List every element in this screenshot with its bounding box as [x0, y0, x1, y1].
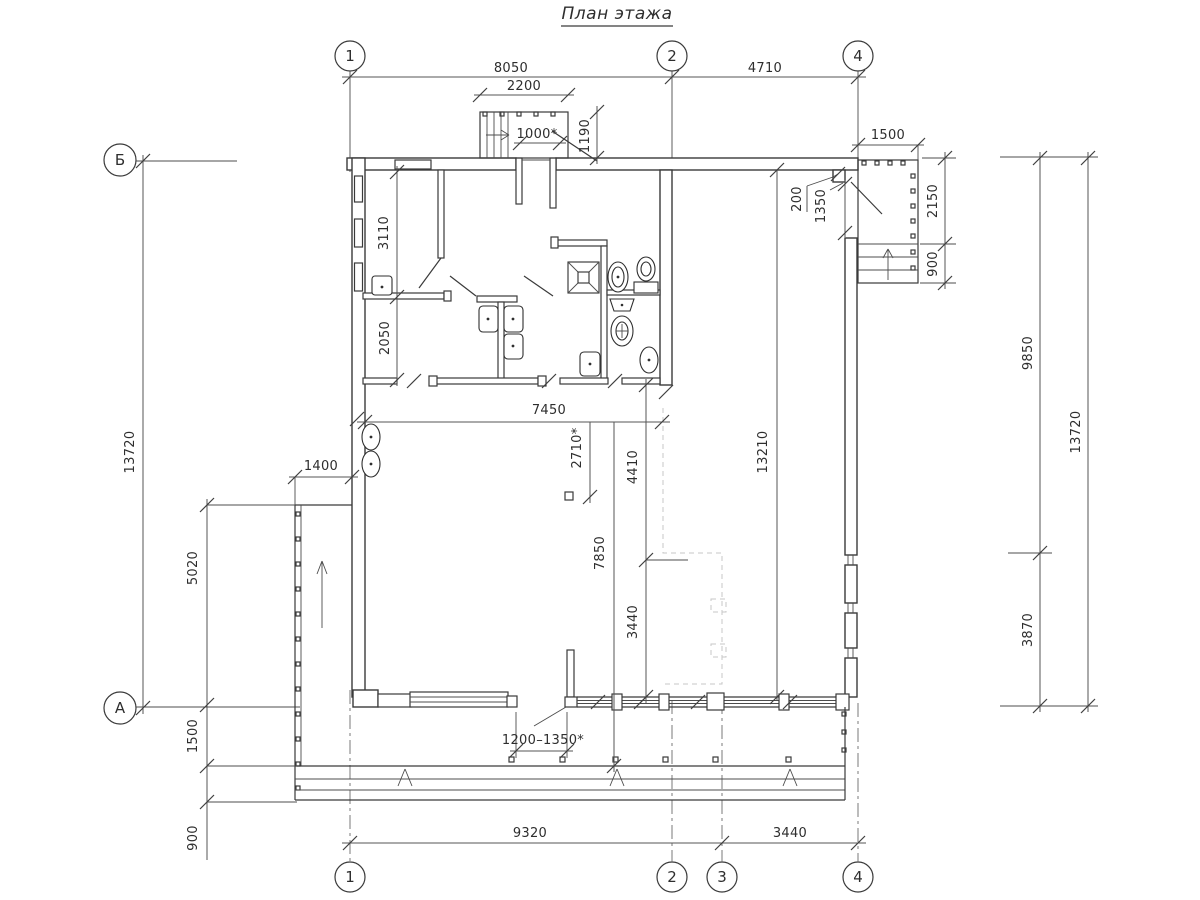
pier — [565, 492, 573, 500]
floor-plan-svg: План этажа 1 2 4 1 2 3 4 Б А — [0, 0, 1200, 900]
sink-icon — [504, 334, 523, 359]
dim-label-3440-mid: 3440 — [626, 605, 641, 639]
dim-label-9850: 9850 — [1021, 336, 1036, 370]
axis-label: 1 — [345, 47, 355, 65]
urinal-icon — [608, 262, 628, 292]
dim-label-3440-bottom: 3440 — [773, 826, 807, 841]
toilet-icon — [634, 257, 658, 293]
dim-label-7850: 7850 — [593, 536, 608, 570]
dim-label-3110: 3110 — [377, 216, 392, 250]
column — [659, 694, 669, 710]
dim-label-3870: 3870 — [1021, 613, 1036, 647]
sink-icon — [610, 299, 634, 311]
ghost-outline — [663, 408, 726, 684]
axis-label: 1 — [345, 868, 355, 886]
door-leaf — [851, 182, 882, 214]
urinal-icon — [640, 347, 658, 373]
column — [707, 693, 724, 710]
dim-label-1190: 1190 — [578, 119, 593, 153]
dim-label-200: 200 — [790, 186, 805, 212]
dim-label-5020: 5020 — [186, 551, 201, 585]
dim-label-1500-left: 1500 — [186, 719, 201, 753]
dim-label-2200: 2200 — [507, 79, 541, 94]
dim-label-7450: 7450 — [532, 403, 566, 418]
dim-label-13720-left: 13720 — [123, 431, 138, 474]
stair-direction-arrow — [883, 249, 893, 280]
stair-direction-arrow — [486, 130, 509, 140]
dim-label-900-left: 900 — [186, 825, 201, 851]
axis-label: А — [115, 699, 126, 717]
axis-label: 3 — [717, 868, 727, 886]
sink-icon — [580, 352, 600, 376]
dim-label-2150: 2150 — [926, 184, 941, 218]
dim-label-2050: 2050 — [378, 321, 393, 355]
dim-label-13210: 13210 — [756, 431, 771, 474]
colonnade — [577, 693, 849, 710]
terrace-step-arrows — [398, 769, 797, 786]
sink-icon — [372, 276, 392, 295]
dim-label-4410: 4410 — [626, 450, 641, 484]
dim-label-1500-top: 1500 — [871, 128, 905, 143]
urinal-icon — [362, 451, 380, 477]
column — [836, 694, 849, 710]
dim-label-1000: 1000* — [516, 127, 557, 142]
dim-label-entry-range: 1200–1350* — [502, 733, 584, 748]
dimension-lines — [143, 77, 1098, 860]
dimension-ticks — [136, 70, 1095, 850]
door-leaf — [450, 276, 476, 296]
dim-label-9320: 9320 — [513, 826, 547, 841]
dim-label-900-right: 900 — [926, 251, 941, 277]
sink-icon — [479, 306, 498, 332]
door-leaf — [419, 258, 441, 288]
dim-label-8050: 8050 — [494, 61, 528, 76]
axis-label: Б — [115, 151, 125, 169]
page-title: План этажа — [562, 4, 673, 24]
axis-label: 4 — [853, 47, 863, 65]
axis-label: 2 — [667, 47, 677, 65]
toilet-icon — [611, 316, 633, 346]
dimension-labels: 8050 4710 2200 1000* 1190 1500 200 1350 … — [123, 61, 1084, 851]
axis-label: 4 — [853, 868, 863, 886]
axis-label: 2 — [667, 868, 677, 886]
dim-label-1350: 1350 — [814, 189, 829, 223]
ramp-direction-arrow — [317, 561, 327, 628]
door-leaf — [524, 276, 553, 296]
dim-label-1400: 1400 — [304, 459, 338, 474]
ramp-annex — [295, 505, 352, 800]
drawing-title: План этажа — [561, 4, 673, 26]
sink-icon — [504, 306, 523, 332]
right-porch — [858, 160, 918, 283]
floor-plan-page: План этажа 1 2 4 1 2 3 4 Б А — [0, 0, 1200, 900]
terrace — [295, 707, 846, 800]
dim-label-4710: 4710 — [748, 61, 782, 76]
dim-label-2710: 2710* — [570, 427, 585, 468]
shower-tray-icon — [568, 262, 599, 293]
urinal-icon — [362, 424, 380, 450]
dim-label-13720-right: 13720 — [1069, 411, 1084, 454]
